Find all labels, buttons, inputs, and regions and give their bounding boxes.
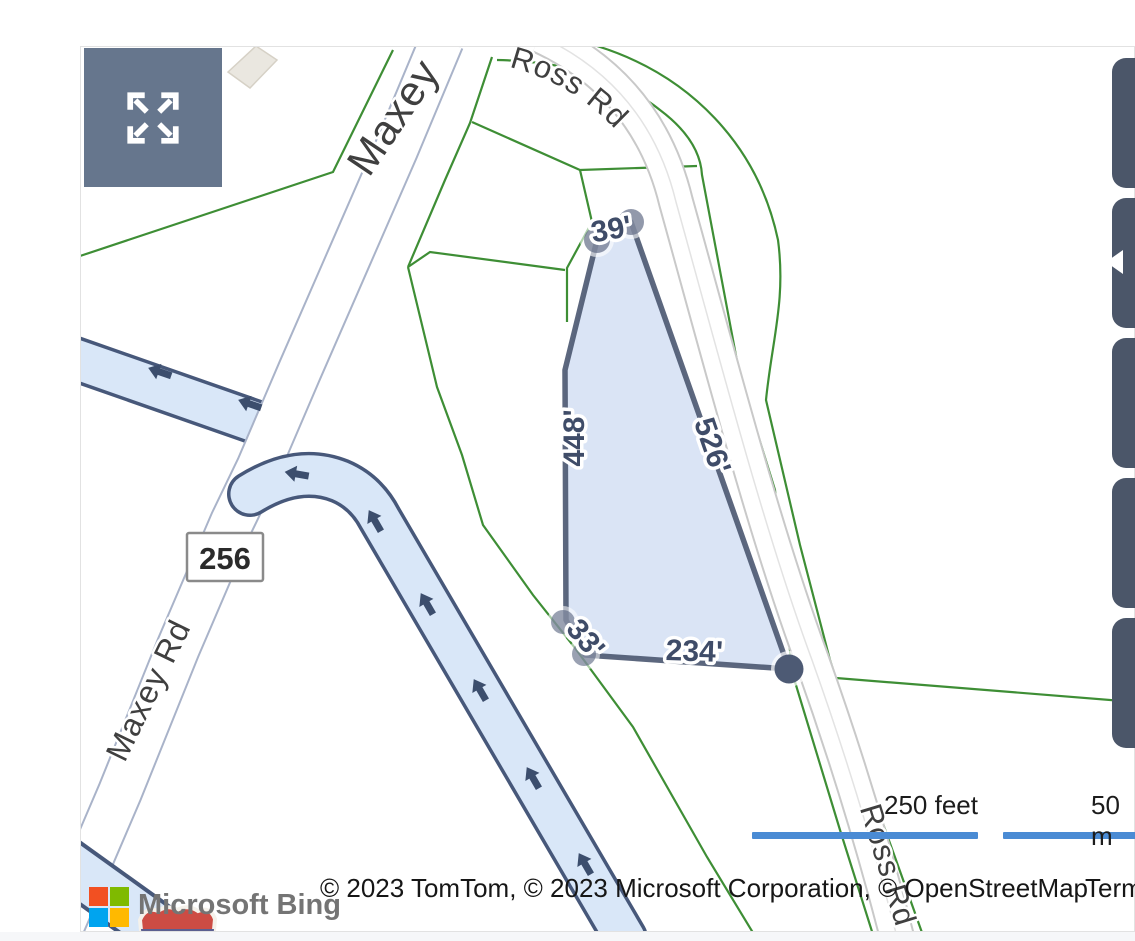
edge-length-label: 234'	[665, 634, 723, 669]
page-strip	[0, 932, 1135, 941]
side-button-3[interactable]	[1112, 338, 1135, 468]
scale-bar-imperial	[752, 832, 978, 839]
map-viewport[interactable]: 39' 448' 526' 33' 234' Maxey Maxey Rd Ro…	[0, 0, 1135, 941]
map-attribution: © 2023 TomTom, © 2023 Microsoft Corporat…	[320, 873, 1088, 904]
ms-square-yellow	[110, 908, 129, 927]
side-button-4[interactable]	[1112, 478, 1135, 608]
bing-logo: Microsoft Bing	[89, 887, 341, 927]
scale-label-imperial: 250 feet	[752, 790, 978, 821]
side-button-5[interactable]	[1112, 618, 1135, 748]
route-shield-number: 256	[199, 541, 251, 576]
side-button-1[interactable]	[1112, 58, 1135, 188]
ms-square-green	[110, 887, 129, 906]
route-shield-256: 256	[187, 533, 263, 581]
edge-length-label: 39'	[589, 210, 635, 250]
collapse-left-icon[interactable]	[1106, 250, 1123, 274]
terms-link[interactable]: Terms	[1085, 873, 1135, 904]
ms-square-red	[89, 887, 108, 906]
microsoft-logo-icon	[89, 887, 129, 927]
expand-arrows-icon	[124, 89, 182, 147]
vertex-marker-selected[interactable]	[771, 651, 807, 687]
scale-label-metric: 50 m	[1091, 790, 1135, 852]
bing-logo-text: Microsoft Bing	[138, 889, 341, 922]
edge-length-label: 448'	[558, 409, 591, 466]
ms-square-blue	[89, 908, 108, 927]
fullscreen-button[interactable]	[84, 48, 222, 187]
